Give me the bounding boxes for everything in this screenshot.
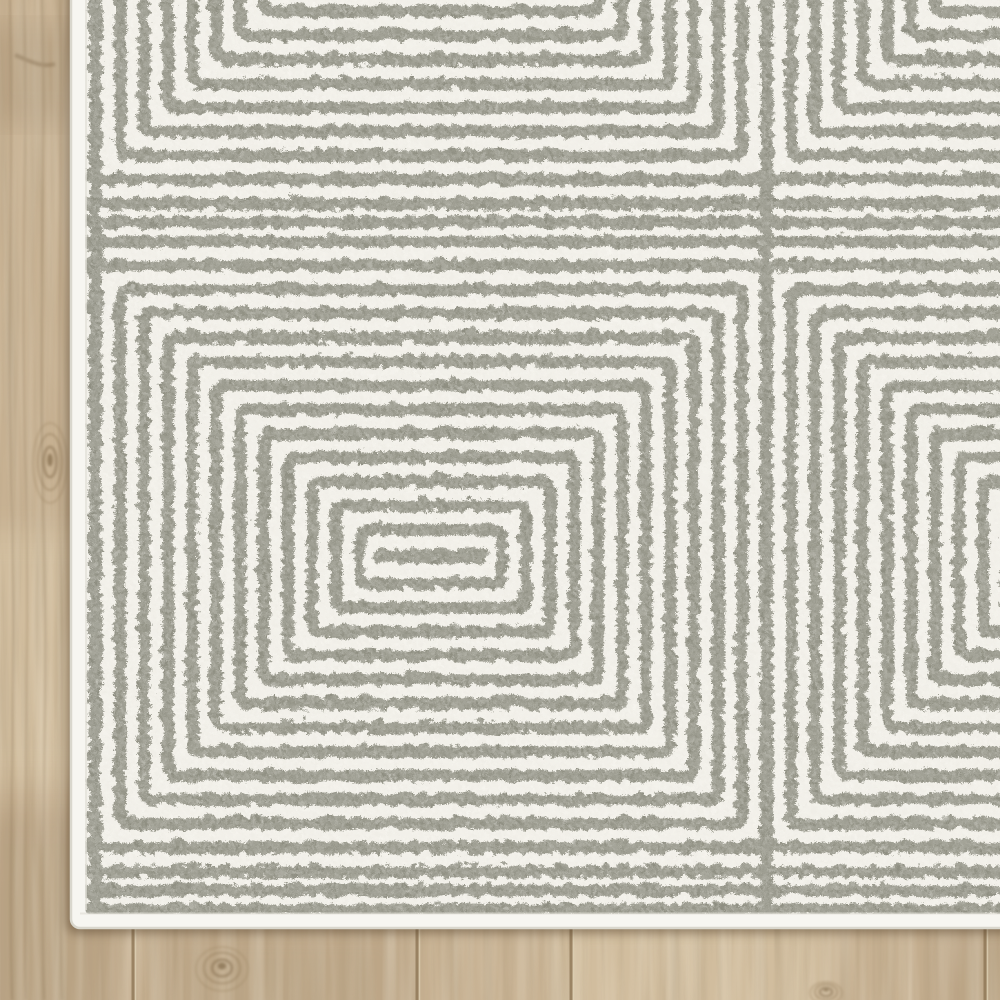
rug-product-photo bbox=[0, 0, 1000, 1000]
rug-pattern bbox=[0, 0, 1000, 1000]
pile-texture bbox=[60, 0, 1000, 950]
rug bbox=[0, 0, 1000, 1000]
